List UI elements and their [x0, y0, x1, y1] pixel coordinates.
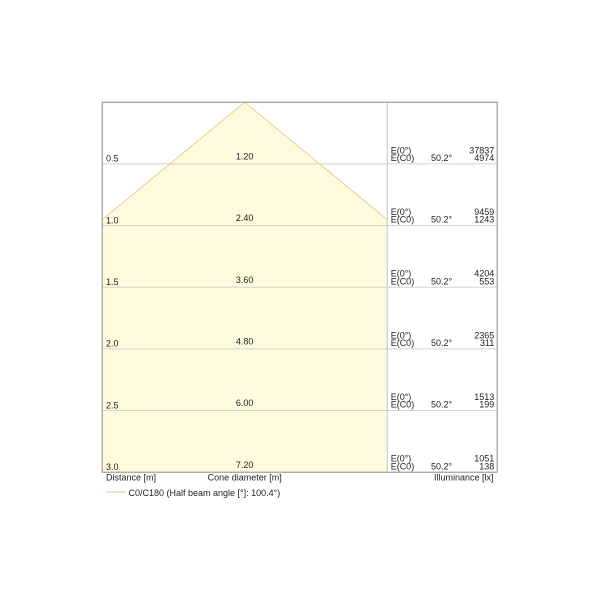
svg-text:Cone diameter [m]: Cone diameter [m] [208, 473, 282, 483]
svg-text:50.2°: 50.2° [431, 400, 453, 410]
svg-text:6.00: 6.00 [236, 398, 254, 408]
svg-text:E(C0): E(C0) [391, 338, 415, 348]
svg-text:50.2°: 50.2° [431, 461, 453, 471]
svg-text:2.0: 2.0 [106, 339, 119, 349]
svg-text:553: 553 [479, 276, 494, 286]
svg-text:E(C0): E(C0) [391, 153, 415, 163]
svg-text:1243: 1243 [474, 215, 494, 225]
svg-text:1.5: 1.5 [106, 277, 119, 287]
svg-text:311: 311 [480, 338, 494, 348]
svg-text:199: 199 [479, 400, 494, 410]
svg-text:0.5: 0.5 [106, 154, 119, 164]
svg-text:4974: 4974 [474, 153, 494, 163]
svg-text:E(C0): E(C0) [391, 461, 415, 471]
svg-text:50.2°: 50.2° [431, 338, 453, 348]
svg-text:4.80: 4.80 [236, 337, 254, 347]
svg-text:3.0: 3.0 [106, 462, 119, 472]
svg-text:138: 138 [479, 461, 494, 471]
svg-text:7.20: 7.20 [236, 460, 254, 470]
svg-text:3.60: 3.60 [236, 275, 254, 285]
svg-text:E(C0): E(C0) [391, 276, 415, 286]
svg-text:E(C0): E(C0) [391, 400, 415, 410]
svg-text:2.5: 2.5 [106, 400, 119, 410]
svg-text:50.2°: 50.2° [431, 153, 453, 163]
svg-text:1.20: 1.20 [236, 152, 254, 162]
svg-text:50.2°: 50.2° [431, 276, 453, 286]
svg-text:1.0: 1.0 [106, 215, 119, 225]
svg-text:Illuminance [lx]: Illuminance [lx] [434, 473, 494, 483]
svg-text:2.40: 2.40 [236, 213, 254, 223]
svg-text:50.2°: 50.2° [431, 215, 453, 225]
svg-text:Distance [m]: Distance [m] [106, 473, 156, 483]
svg-text:C0/C180 (Half beam angle [°]:: C0/C180 (Half beam angle [°]: 100.4°) [129, 488, 281, 498]
svg-text:E(C0): E(C0) [391, 215, 415, 225]
